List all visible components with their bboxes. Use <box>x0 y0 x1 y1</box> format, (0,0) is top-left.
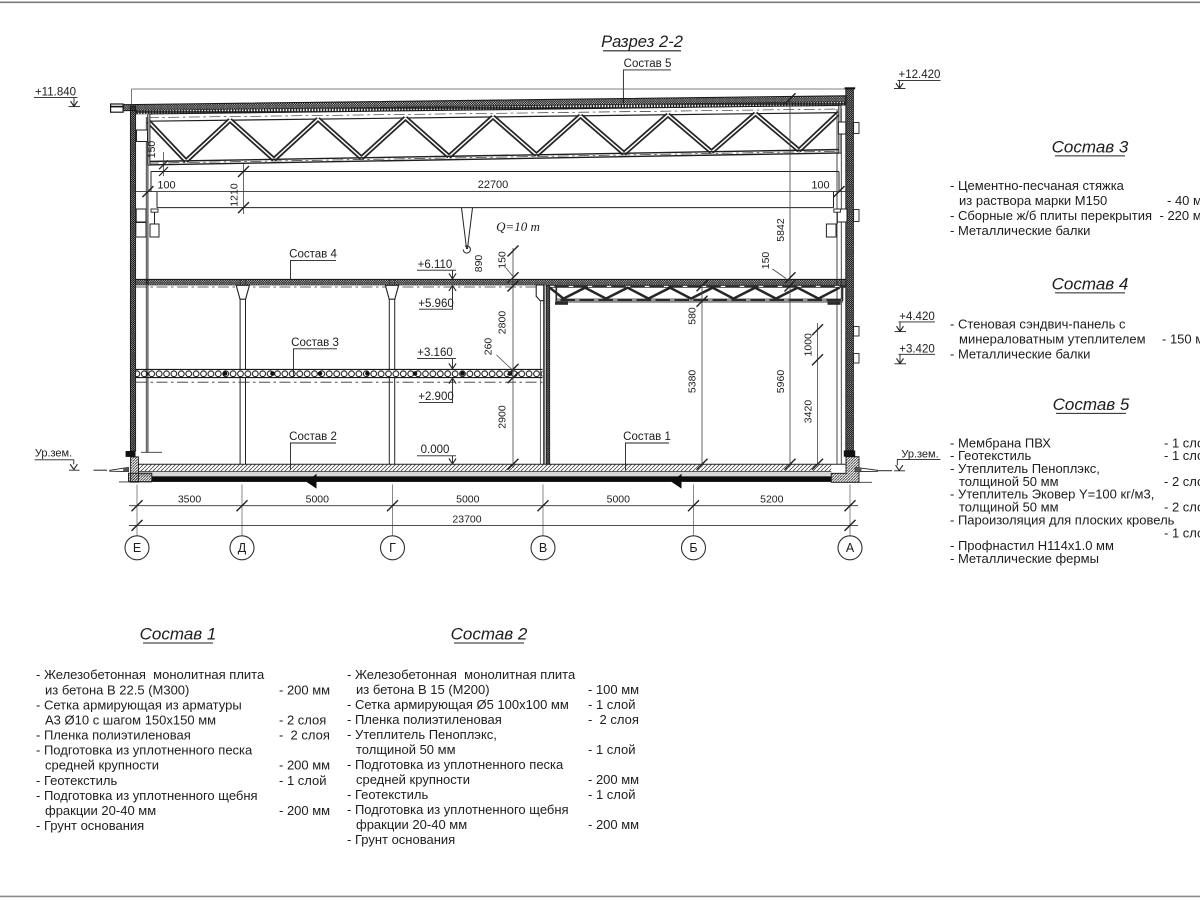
svg-text:- Геотекстиль: - Геотекстиль <box>347 787 428 802</box>
svg-text:100: 100 <box>157 179 175 191</box>
svg-text:150: 150 <box>760 252 772 270</box>
svg-text:+11.840: +11.840 <box>35 87 76 99</box>
svg-text:- Подготовка из уплотненного щ: - Подготовка из уплотненного щебня <box>36 788 258 803</box>
svg-text:фракции 20-40 мм: фракции 20-40 мм <box>356 817 467 832</box>
svg-text:Е: Е <box>133 541 141 555</box>
svg-text:толщиной 50 мм: толщиной 50 мм <box>356 742 456 757</box>
svg-text:3420: 3420 <box>803 400 815 424</box>
svg-text:580: 580 <box>687 307 699 325</box>
svg-text:Состав 3: Состав 3 <box>1052 137 1129 156</box>
svg-text:150: 150 <box>146 141 158 159</box>
svg-text:5000: 5000 <box>306 494 330 506</box>
svg-text:- Цементно-песчаная стяжка: - Цементно-песчаная стяжка <box>950 178 1125 193</box>
svg-text:+12.420: +12.420 <box>899 69 941 81</box>
svg-text:- 1 слой: - 1 слой <box>588 742 636 757</box>
svg-text:Состав 1: Состав 1 <box>140 624 217 643</box>
svg-text:- 1 слой: - 1 слой <box>279 773 327 788</box>
svg-text:23700: 23700 <box>452 513 481 525</box>
svg-text:- 100 мм: - 100 мм <box>588 682 639 697</box>
svg-text:А: А <box>846 541 855 555</box>
svg-text:- Грунт основания: - Грунт основания <box>347 832 455 847</box>
svg-text:- 1 слой: - 1 слой <box>588 697 636 712</box>
svg-text:- Пленка полиэтиленовая: - Пленка полиэтиленовая <box>36 728 191 743</box>
svg-text:150: 150 <box>497 251 509 269</box>
svg-text:Состав 4: Состав 4 <box>289 249 337 261</box>
svg-text:из раствора марки М150: из раствора марки М150 <box>959 193 1107 208</box>
svg-text:0.000: 0.000 <box>421 444 450 456</box>
svg-text:5000: 5000 <box>607 494 631 506</box>
svg-text:- Сетка армирующая Ø5 100х100: - Сетка армирующая Ø5 100х100 мм <box>347 697 569 712</box>
svg-text:А3 Ø10 с шагом 150х150 мм: А3 Ø10 с шагом 150х150 мм <box>45 713 216 728</box>
svg-text:- Утеплитель Пеноплэкс,: - Утеплитель Пеноплэкс, <box>347 727 497 742</box>
svg-text:- Металлические балки: - Металлические балки <box>950 346 1090 361</box>
svg-text:- 1 слой: - 1 слой <box>588 787 636 802</box>
svg-text:- 2 слоя: - 2 слоя <box>279 713 326 728</box>
svg-text:Ур.зем.: Ур.зем. <box>901 448 938 460</box>
svg-text:+4.420: +4.420 <box>899 311 935 323</box>
svg-text:Ур.зем.: Ур.зем. <box>35 447 72 459</box>
svg-text:- 200 мм: - 200 мм <box>588 772 639 787</box>
svg-text:Состав 3: Состав 3 <box>291 337 339 349</box>
svg-text:- Сборные ж/б плиты перекрытия: - Сборные ж/б плиты перекрытия <box>950 208 1152 223</box>
svg-text:Д: Д <box>238 541 247 555</box>
svg-text:Состав 5: Состав 5 <box>624 58 672 70</box>
svg-text:5000: 5000 <box>456 494 480 506</box>
svg-text:+5.960: +5.960 <box>418 298 454 310</box>
svg-text:- Металлические фермы: - Металлические фермы <box>950 551 1099 566</box>
svg-text:- Подготовка из уплотненного щ: - Подготовка из уплотненного щебня <box>347 802 569 817</box>
svg-text:- Железобетонная монолитная п: - Железобетонная монолитная плита <box>36 667 265 682</box>
svg-text:- 220 мм: - 220 мм <box>1160 208 1200 223</box>
svg-text:Состав 4: Состав 4 <box>1052 274 1129 293</box>
svg-text:Разрез 2-2: Разрез 2-2 <box>601 33 683 51</box>
svg-text:5380: 5380 <box>687 370 699 394</box>
svg-text:5200: 5200 <box>760 494 784 506</box>
svg-text:средней крупности: средней крупности <box>45 758 159 773</box>
svg-text:- Подготовка из уплотненного п: - Подготовка из уплотненного песка <box>36 743 253 758</box>
svg-text:+6.110: +6.110 <box>418 259 453 271</box>
svg-text:- 2 слоя: - 2 слоя <box>588 712 639 727</box>
svg-text:- 200 мм: - 200 мм <box>279 803 330 818</box>
svg-text:- 200 мм: - 200 мм <box>279 682 330 697</box>
svg-text:5960: 5960 <box>775 370 787 394</box>
svg-text:фракции 20-40 мм: фракции 20-40 мм <box>45 803 156 818</box>
svg-text:- Подготовка из уплотненного п: - Подготовка из уплотненного песка <box>347 757 564 772</box>
svg-text:из бетона В 15 (М200): из бетона В 15 (М200) <box>356 682 490 697</box>
svg-text:+3.420: +3.420 <box>899 343 935 355</box>
svg-text:Состав 5: Состав 5 <box>1053 395 1130 414</box>
svg-text:Б: Б <box>689 541 697 555</box>
svg-text:2800: 2800 <box>497 311 509 335</box>
svg-text:- 40 мм: - 40 мм <box>1167 193 1200 208</box>
svg-text:- 2 слоя: - 2 слоя <box>1164 474 1200 489</box>
svg-text:- Стеновая сэндвич-панель с: - Стеновая сэндвич-панель с <box>950 316 1126 331</box>
svg-text:+3.160: +3.160 <box>417 347 453 359</box>
svg-text:22700: 22700 <box>478 179 509 191</box>
svg-text:1000: 1000 <box>803 333 815 357</box>
svg-text:- Металлические балки: - Металлические балки <box>950 223 1090 238</box>
svg-text:100: 100 <box>811 179 829 191</box>
svg-text:В: В <box>539 541 547 555</box>
svg-text:Состав 1: Состав 1 <box>623 431 671 443</box>
svg-text:Q=10 m: Q=10 m <box>496 219 540 234</box>
svg-text:- 200 мм: - 200 мм <box>588 817 639 832</box>
svg-text:890: 890 <box>473 255 485 273</box>
svg-text:- Пленка полиэтиленовая: - Пленка полиэтиленовая <box>347 712 502 727</box>
svg-text:- Железобетонная монолитная п: - Железобетонная монолитная плита <box>347 667 576 682</box>
svg-text:+2.900: +2.900 <box>418 391 454 403</box>
svg-text:средней крупности: средней крупности <box>356 772 470 787</box>
svg-text:Состав 2: Состав 2 <box>289 431 337 443</box>
svg-text:- Сетка армирующая из арматуры: - Сетка армирующая из арматуры <box>36 697 242 712</box>
svg-text:- 2 слоя: - 2 слоя <box>279 728 330 743</box>
svg-text:2900: 2900 <box>497 405 509 429</box>
svg-text:- 150 мм: - 150 мм <box>1162 331 1200 346</box>
svg-text:из бетона В 22.5 (М300): из бетона В 22.5 (М300) <box>45 682 189 697</box>
svg-text:- 1 слой: - 1 слой <box>1164 525 1200 540</box>
svg-text:5842: 5842 <box>775 218 787 242</box>
svg-text:минераловатным утеплителем: минераловатным утеплителем <box>959 331 1146 346</box>
svg-text:- Грунт основания: - Грунт основания <box>36 818 144 833</box>
svg-text:260: 260 <box>483 338 495 356</box>
svg-text:- 200 мм: - 200 мм <box>279 758 330 773</box>
svg-text:1210: 1210 <box>228 183 240 207</box>
svg-text:3500: 3500 <box>178 494 202 506</box>
svg-text:- Пароизоляция для плоских кро: - Пароизоляция для плоских кровель <box>950 512 1175 527</box>
svg-text:Г: Г <box>389 541 396 555</box>
svg-text:- 1 слой: - 1 слой <box>1164 448 1200 463</box>
svg-text:Состав 2: Состав 2 <box>451 624 528 643</box>
svg-text:- Геотекстиль: - Геотекстиль <box>36 773 117 788</box>
